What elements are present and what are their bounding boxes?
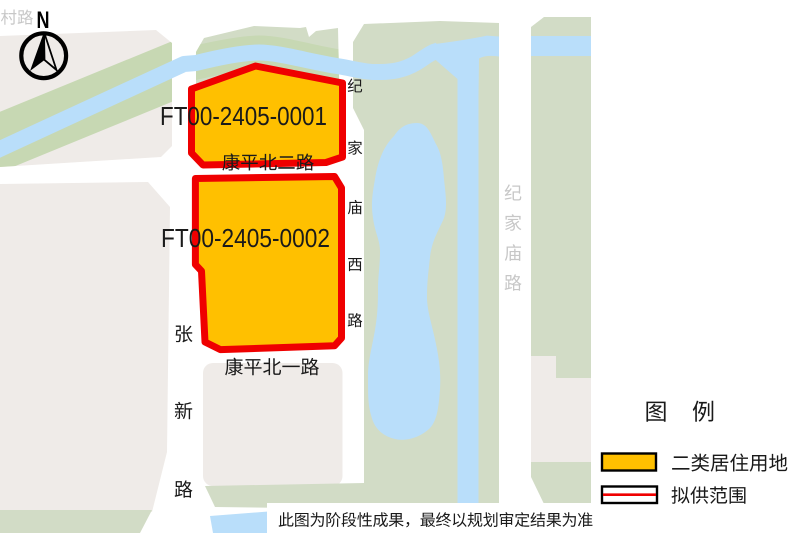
svg-text:FT00-2405-0001: FT00-2405-0001 <box>160 101 327 131</box>
svg-text:N: N <box>37 7 50 34</box>
svg-text:FT00-2405-0002: FT00-2405-0002 <box>161 223 330 253</box>
